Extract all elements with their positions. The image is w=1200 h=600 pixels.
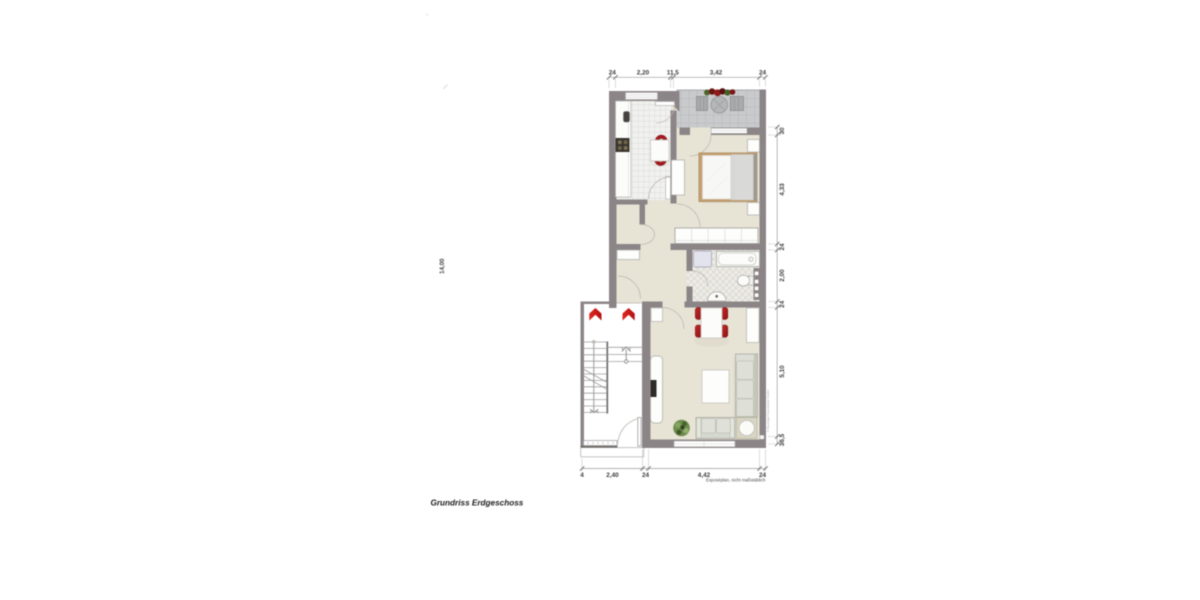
svg-text:5,10: 5,10 (779, 365, 786, 378)
svg-text:Grundriss Erdgeschoss: Grundriss Erdgeschoss (431, 499, 524, 508)
svg-text:24: 24 (642, 472, 650, 479)
svg-text:© Bauträger Exposéplan GmbH: © Bauträger Exposéplan GmbH (766, 390, 770, 432)
svg-text:36,5: 36,5 (779, 433, 786, 446)
svg-text:3,42: 3,42 (710, 70, 723, 77)
svg-text:24: 24 (609, 70, 617, 77)
svg-text:24: 24 (779, 243, 786, 251)
svg-text:4,33: 4,33 (779, 183, 786, 196)
svg-text:2,00: 2,00 (779, 269, 786, 282)
svg-text:30: 30 (779, 127, 786, 135)
svg-text:Exposéplan, nicht maßstäblich: Exposéplan, nicht maßstäblich (706, 477, 766, 482)
svg-text:24: 24 (759, 70, 767, 77)
svg-text:14,00: 14,00 (439, 258, 446, 274)
svg-text:2,20: 2,20 (637, 70, 650, 77)
svg-text:2,40: 2,40 (606, 472, 619, 479)
svg-text:11,5: 11,5 (667, 70, 680, 77)
svg-text:24: 24 (779, 300, 786, 308)
svg-text:4: 4 (580, 472, 584, 479)
